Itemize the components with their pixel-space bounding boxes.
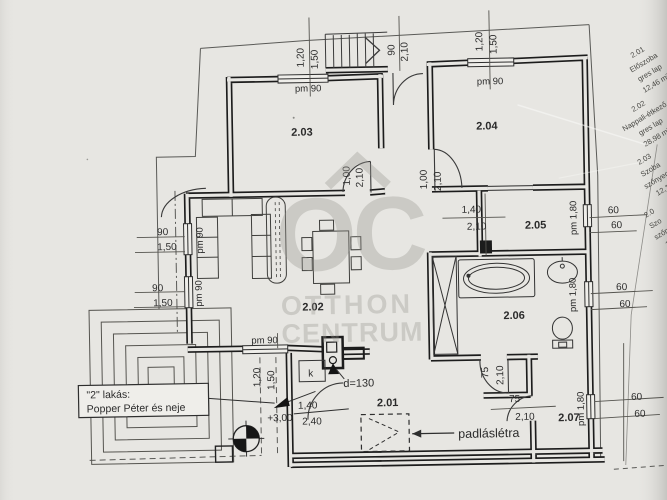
dim-entrance-height: 2,40 <box>302 416 322 427</box>
dim-parapet-204: pm 90 <box>477 76 504 87</box>
window-left-1 <box>184 224 193 255</box>
watermark: OC OTTHON CENTRUM <box>274 157 427 350</box>
room-label-2-05: 2.05 <box>525 219 547 231</box>
dim-left-win1-height: 1,50 <box>157 242 177 253</box>
window-203-top <box>278 74 328 83</box>
dim-win-c-60-bottom: 60 <box>634 409 646 420</box>
dim-win-a-60-top: 60 <box>608 205 620 216</box>
window-right-c <box>587 395 595 419</box>
owner-line-2: Popper Péter és neje <box>87 402 186 416</box>
dim-parapet-left-2: pm 90 <box>194 280 205 307</box>
owner-line-1: "2" lakás: <box>86 389 130 402</box>
dim-parapet-right-c: pm 1,80 <box>576 392 588 427</box>
dim-corridor-door-width: 90 <box>386 44 397 56</box>
dim-opening205-height: 2,10 <box>467 221 487 232</box>
room-label-2-04: 2.04 <box>476 120 498 132</box>
floor-plan-scan: { "watermark": { "logo": "OC", "line1": … <box>0 0 667 500</box>
dim-entrance-width: 1,40 <box>298 400 318 411</box>
dim-win-b-60-top: 60 <box>616 282 628 293</box>
window-right-b <box>585 282 593 307</box>
dim-parapet-right-b: pm 1,80 <box>568 278 580 313</box>
dim-parapet-left-1: pm 90 <box>195 227 206 254</box>
dim-stair-window-width: 1,20 <box>295 47 306 67</box>
dim-204-window-height: 1,50 <box>488 34 499 54</box>
chimney-diameter-label: d=130 <box>343 377 374 390</box>
dim-door207-height: 2,10 <box>515 412 535 423</box>
dim-bathdoor-width: 75 <box>480 366 491 378</box>
dim-left-win2-height: 1,50 <box>153 298 173 309</box>
dim-bottom-win-width: 1,20 <box>252 367 263 387</box>
dim-win-b-60-bottom: 60 <box>619 299 631 310</box>
dim-parapet-right-a: pm 1,80 <box>568 201 580 236</box>
dim-parapet-203: pm 90 <box>295 83 322 94</box>
room-label-2-06: 2.06 <box>503 310 525 322</box>
dim-bathdoor-height: 2,10 <box>495 365 506 385</box>
dim-win-a-60-bottom: 60 <box>611 220 623 231</box>
dim-level: +3,00 <box>267 413 293 424</box>
dim-door207-width: 75 <box>509 394 521 405</box>
dim-corridor-door-height: 2,10 <box>399 42 410 62</box>
dim-win-c-60-top: 60 <box>631 392 643 403</box>
dim-stair-window-height: 1,50 <box>309 49 320 69</box>
dim-204-window-width: 1,20 <box>474 31 485 51</box>
room-label-2-03: 2.03 <box>291 126 313 138</box>
plan-canvas: 2.03 2.04 2.02 2.05 2.06 2.01 2.07 1,20 … <box>0 0 667 500</box>
paper-left-shade <box>0 0 16 500</box>
window-left-2 <box>184 277 193 308</box>
window-204-top <box>468 58 514 67</box>
room-label-2-01: 2.01 <box>377 397 399 409</box>
watermark-line2: CENTRUM <box>281 317 424 349</box>
watermark-logo: OC <box>275 176 427 295</box>
dim-door204-height: 2,10 <box>433 171 444 191</box>
dim-left-win2-width: 90 <box>152 283 164 294</box>
dim-opening205-width: 1,40 <box>461 205 481 216</box>
dim-left-win1-width: 90 <box>157 227 169 238</box>
dim-bottom-win-height: 1,50 <box>266 370 277 390</box>
owner-label-box: "2" lakás: Popper Péter és neje <box>78 383 209 417</box>
dim-parapet-bottom: pm 90 <box>251 335 278 346</box>
window-right-a <box>583 205 591 227</box>
attic-ladder-label: padláslétra <box>458 426 519 441</box>
